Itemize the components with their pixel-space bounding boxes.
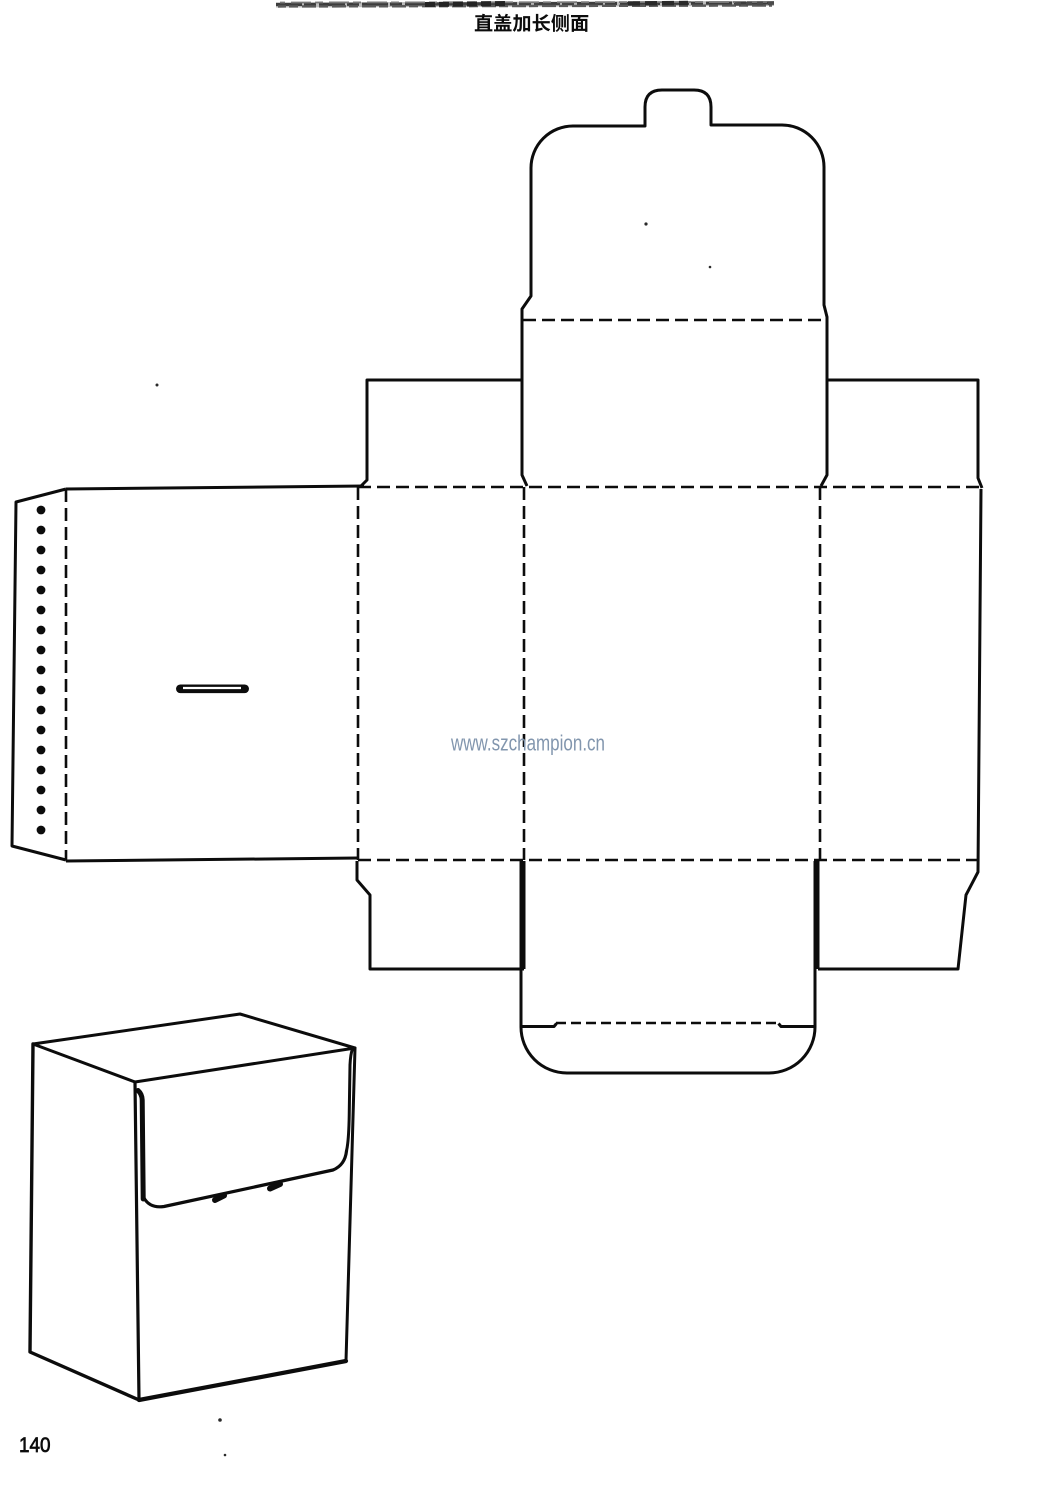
svg-text:140: 140 [19, 1434, 51, 1457]
svg-text:www.szchampion.cn: www.szchampion.cn [450, 731, 605, 756]
